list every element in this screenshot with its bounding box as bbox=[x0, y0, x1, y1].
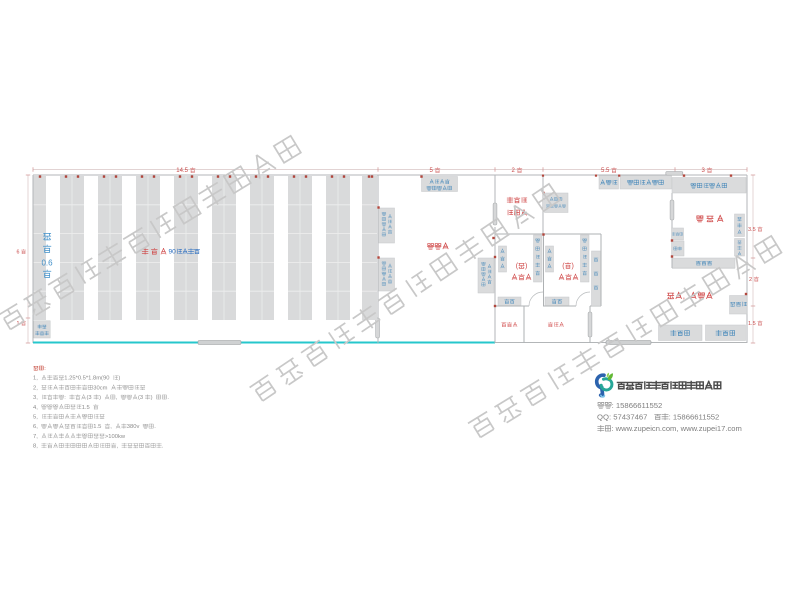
svg-text:30cm: 30cm bbox=[93, 385, 107, 391]
svg-text:3: 3 bbox=[702, 168, 706, 174]
svg-text:): ) bbox=[151, 395, 153, 401]
svg-text:1,: 1, bbox=[33, 376, 38, 382]
svg-text:90: 90 bbox=[169, 249, 177, 256]
svg-text:,: , bbox=[116, 395, 118, 401]
svg-text:(3: (3 bbox=[138, 395, 143, 401]
svg-text:3,: 3, bbox=[33, 395, 38, 401]
svg-text:,: , bbox=[117, 444, 119, 450]
svg-text:TH: TH bbox=[604, 382, 611, 388]
svg-text:): ) bbox=[525, 263, 527, 270]
svg-text::: : bbox=[44, 366, 46, 372]
svg-text:): ) bbox=[572, 263, 574, 270]
svg-text:2: 2 bbox=[749, 277, 752, 283]
svg-text:8,: 8, bbox=[33, 444, 38, 450]
svg-text:QQ: 57437467: QQ: 57437467 bbox=[597, 413, 647, 422]
svg-text:): ) bbox=[99, 395, 101, 401]
svg-text:1.25*0.5*1.8m(90: 1.25*0.5*1.8m(90 bbox=[64, 376, 109, 382]
svg-text:1.5: 1.5 bbox=[748, 321, 756, 327]
svg-text:0.6: 0.6 bbox=[41, 259, 53, 268]
svg-text:(: ( bbox=[516, 263, 519, 270]
svg-text:.: . bbox=[167, 395, 169, 401]
svg-text:>100kw: >100kw bbox=[105, 434, 126, 440]
svg-text:380v: 380v bbox=[127, 424, 140, 430]
svg-text:3.5: 3.5 bbox=[748, 227, 756, 233]
svg-text:2,: 2, bbox=[33, 385, 38, 391]
svg-text:,: , bbox=[110, 424, 112, 430]
svg-text:1.5: 1.5 bbox=[82, 405, 90, 411]
svg-text::: : bbox=[64, 395, 66, 401]
svg-text:2: 2 bbox=[512, 168, 516, 174]
svg-text:: www.zupeicn.com, www.zupei: : www.zupeicn.com, www.zupei17.com bbox=[611, 424, 741, 433]
svg-text:5,: 5, bbox=[33, 415, 38, 421]
svg-text:(3: (3 bbox=[87, 395, 92, 401]
svg-text:5: 5 bbox=[430, 168, 434, 174]
svg-text:: 15866611552: : 15866611552 bbox=[669, 413, 720, 422]
svg-text:: 15866611552: : 15866611552 bbox=[612, 401, 663, 410]
svg-text:6,: 6, bbox=[33, 424, 38, 430]
svg-text:): ) bbox=[118, 376, 120, 382]
svg-text:5.5: 5.5 bbox=[601, 168, 610, 174]
svg-text:.: . bbox=[154, 424, 156, 430]
svg-text:6: 6 bbox=[17, 249, 20, 255]
svg-text:14.5: 14.5 bbox=[176, 168, 188, 174]
svg-text:(: ( bbox=[562, 263, 565, 270]
svg-text:7,: 7, bbox=[33, 434, 38, 440]
svg-text:.: . bbox=[162, 444, 164, 450]
svg-text:4,: 4, bbox=[33, 405, 38, 411]
svg-text:1.5: 1.5 bbox=[93, 424, 101, 430]
